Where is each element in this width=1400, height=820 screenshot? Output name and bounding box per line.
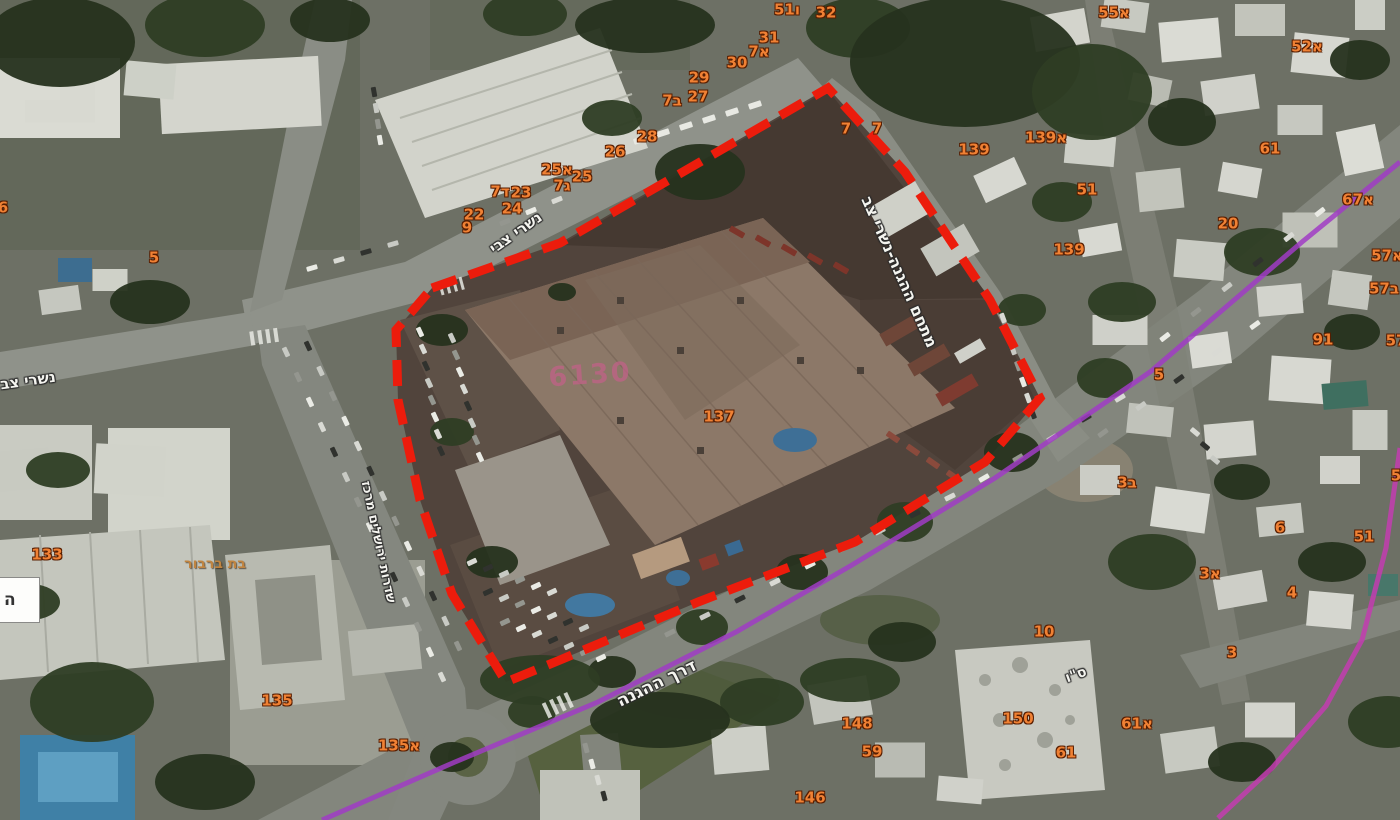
parcel-label: 32 xyxy=(816,6,837,21)
place-name-label: בת ברבור xyxy=(184,556,246,572)
block-number-label: 6130 xyxy=(547,357,632,394)
parcel-label: 59 xyxy=(862,745,883,760)
street-label: דרך ההגנה xyxy=(614,657,699,710)
parcel-label: 139 xyxy=(958,143,989,158)
parcel-label: 139א xyxy=(1025,131,1067,146)
parcel-label: 3ב xyxy=(1117,476,1137,491)
parcel-label: 135 xyxy=(261,694,292,709)
parcel-label: 133 xyxy=(31,548,62,563)
street-label: מתחם ההגנה-נשרי צב xyxy=(858,194,939,350)
street-label: שדרות ירושלים מרכז xyxy=(359,480,398,604)
parcel-label: 7ב xyxy=(662,94,682,109)
parcel-label: 7 xyxy=(872,122,882,137)
parcel-label: 91 xyxy=(1313,333,1334,348)
parcel-label: 9 xyxy=(462,221,472,236)
parcel-label: 51 xyxy=(1077,183,1098,198)
parcel-label: 5 xyxy=(149,251,159,266)
parcel-label: 25א xyxy=(541,163,573,178)
parcel-label: 7ד xyxy=(490,185,509,200)
parcel-label: 61א xyxy=(1121,717,1153,732)
parcel-label: 139 xyxy=(1053,243,1084,258)
parcel-label: 5 xyxy=(1154,368,1164,383)
parcel-label: 148 xyxy=(841,717,872,732)
parcel-label: 23 xyxy=(511,186,532,201)
parcel-label: 29 xyxy=(689,71,710,86)
parcel-label: 61 xyxy=(1056,746,1077,761)
parcel-label: 52א xyxy=(1291,40,1323,55)
parcel-label: 3א xyxy=(1199,567,1220,582)
parcel-label: 55א xyxy=(1098,6,1130,21)
parcel-label: 28 xyxy=(637,130,658,145)
annotation-labels: ה 6130 בת ברבור 51ו32317א3029277ב282625א… xyxy=(0,0,1400,820)
parcel-label: 150 xyxy=(1002,712,1033,727)
parcel-label: 61 xyxy=(1260,142,1281,157)
street-label: נשרי צב xyxy=(0,370,57,393)
parcel-label: 137 xyxy=(703,410,734,425)
parcel-label: 3 xyxy=(1227,646,1237,661)
parcel-label: 51ו xyxy=(774,3,800,18)
parcel-label: 24 xyxy=(502,202,523,217)
parcel-label: 26 xyxy=(605,145,626,160)
parcel-label: 20 xyxy=(1218,217,1239,232)
parcel-label: 7ג xyxy=(553,179,570,194)
aerial-plan-map: ה 6130 בת ברבור 51ו32317א3029277ב282625א… xyxy=(0,0,1400,820)
parcel-label: 7א xyxy=(748,45,769,60)
parcel-label: 51 xyxy=(1354,530,1375,545)
street-name-box-text: ה xyxy=(4,590,16,610)
parcel-label: 7 xyxy=(841,122,851,137)
parcel-label: 67א xyxy=(1342,193,1374,208)
parcel-label: 30 xyxy=(727,56,748,71)
parcel-label: 6 xyxy=(1275,521,1285,536)
parcel-label: 57א xyxy=(1371,249,1400,264)
parcel-label: 5 xyxy=(1391,469,1400,484)
parcel-label: 4 xyxy=(1287,586,1297,601)
parcel-label: 6 xyxy=(0,201,8,216)
parcel-label: 135א xyxy=(378,739,420,754)
parcel-label: 146 xyxy=(794,791,825,806)
parcel-label: 57 xyxy=(1386,334,1400,349)
street-label: ס"ו xyxy=(1063,665,1088,686)
street-name-box: ה xyxy=(0,577,40,623)
parcel-label: 27 xyxy=(688,90,709,105)
parcel-label: 57ב xyxy=(1369,282,1399,297)
parcel-label: 25 xyxy=(572,170,593,185)
parcel-label: 10 xyxy=(1034,625,1055,640)
